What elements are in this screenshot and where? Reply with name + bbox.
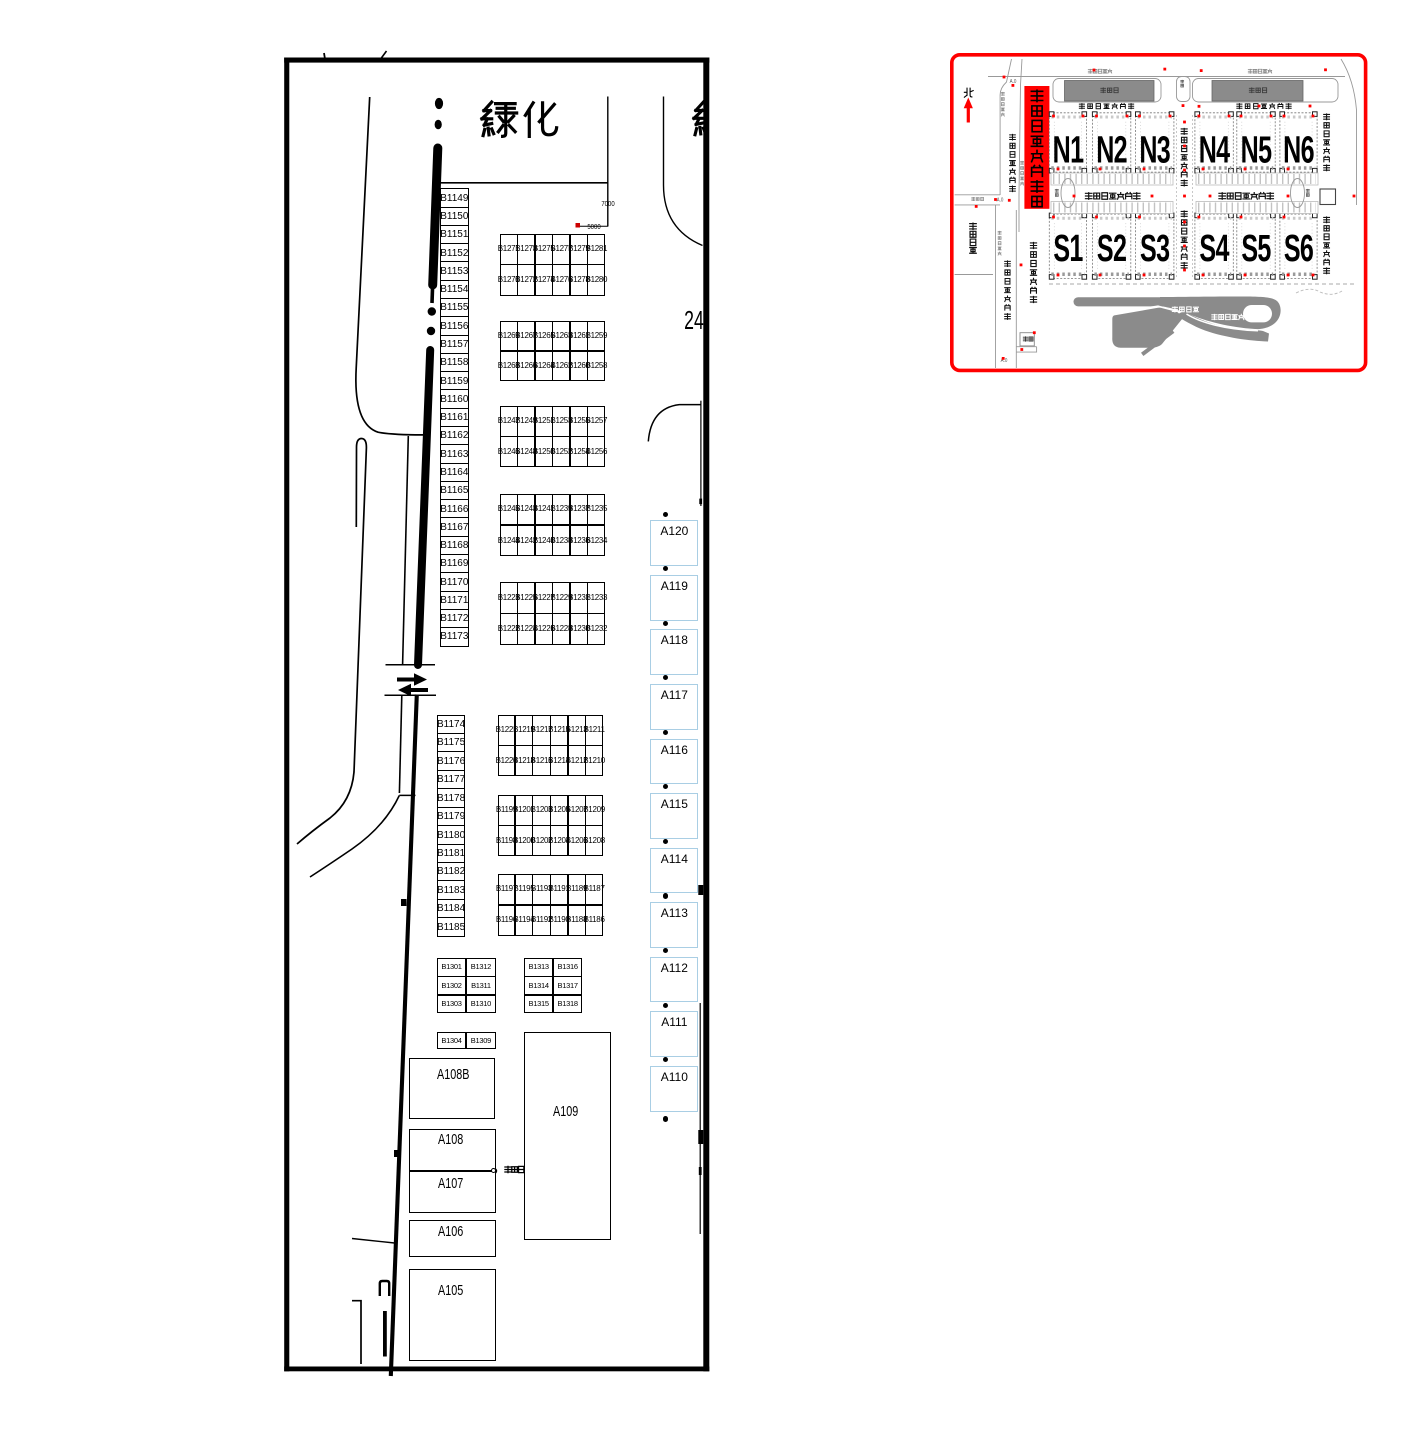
svg-text:N5: N5 (1241, 128, 1272, 170)
svg-text:S4: S4 (1199, 227, 1229, 269)
svg-text:N1: N1 (1053, 128, 1084, 170)
svg-text:24: 24 (684, 306, 704, 335)
svg-text:S6: S6 (1284, 227, 1313, 269)
svg-text:5000: 5000 (587, 223, 601, 231)
svg-text:S3: S3 (1140, 227, 1169, 269)
svg-text:S5: S5 (1241, 227, 1270, 269)
svg-text:A.0: A.0 (997, 197, 1004, 203)
svg-text:7000: 7000 (601, 200, 615, 208)
svg-text:S1: S1 (1053, 227, 1082, 269)
svg-text:N4: N4 (1199, 128, 1230, 170)
svg-text:N3: N3 (1139, 128, 1170, 170)
svg-text:S2: S2 (1097, 227, 1126, 269)
svg-text:N6: N6 (1283, 128, 1314, 170)
svg-text:N2: N2 (1096, 128, 1127, 170)
